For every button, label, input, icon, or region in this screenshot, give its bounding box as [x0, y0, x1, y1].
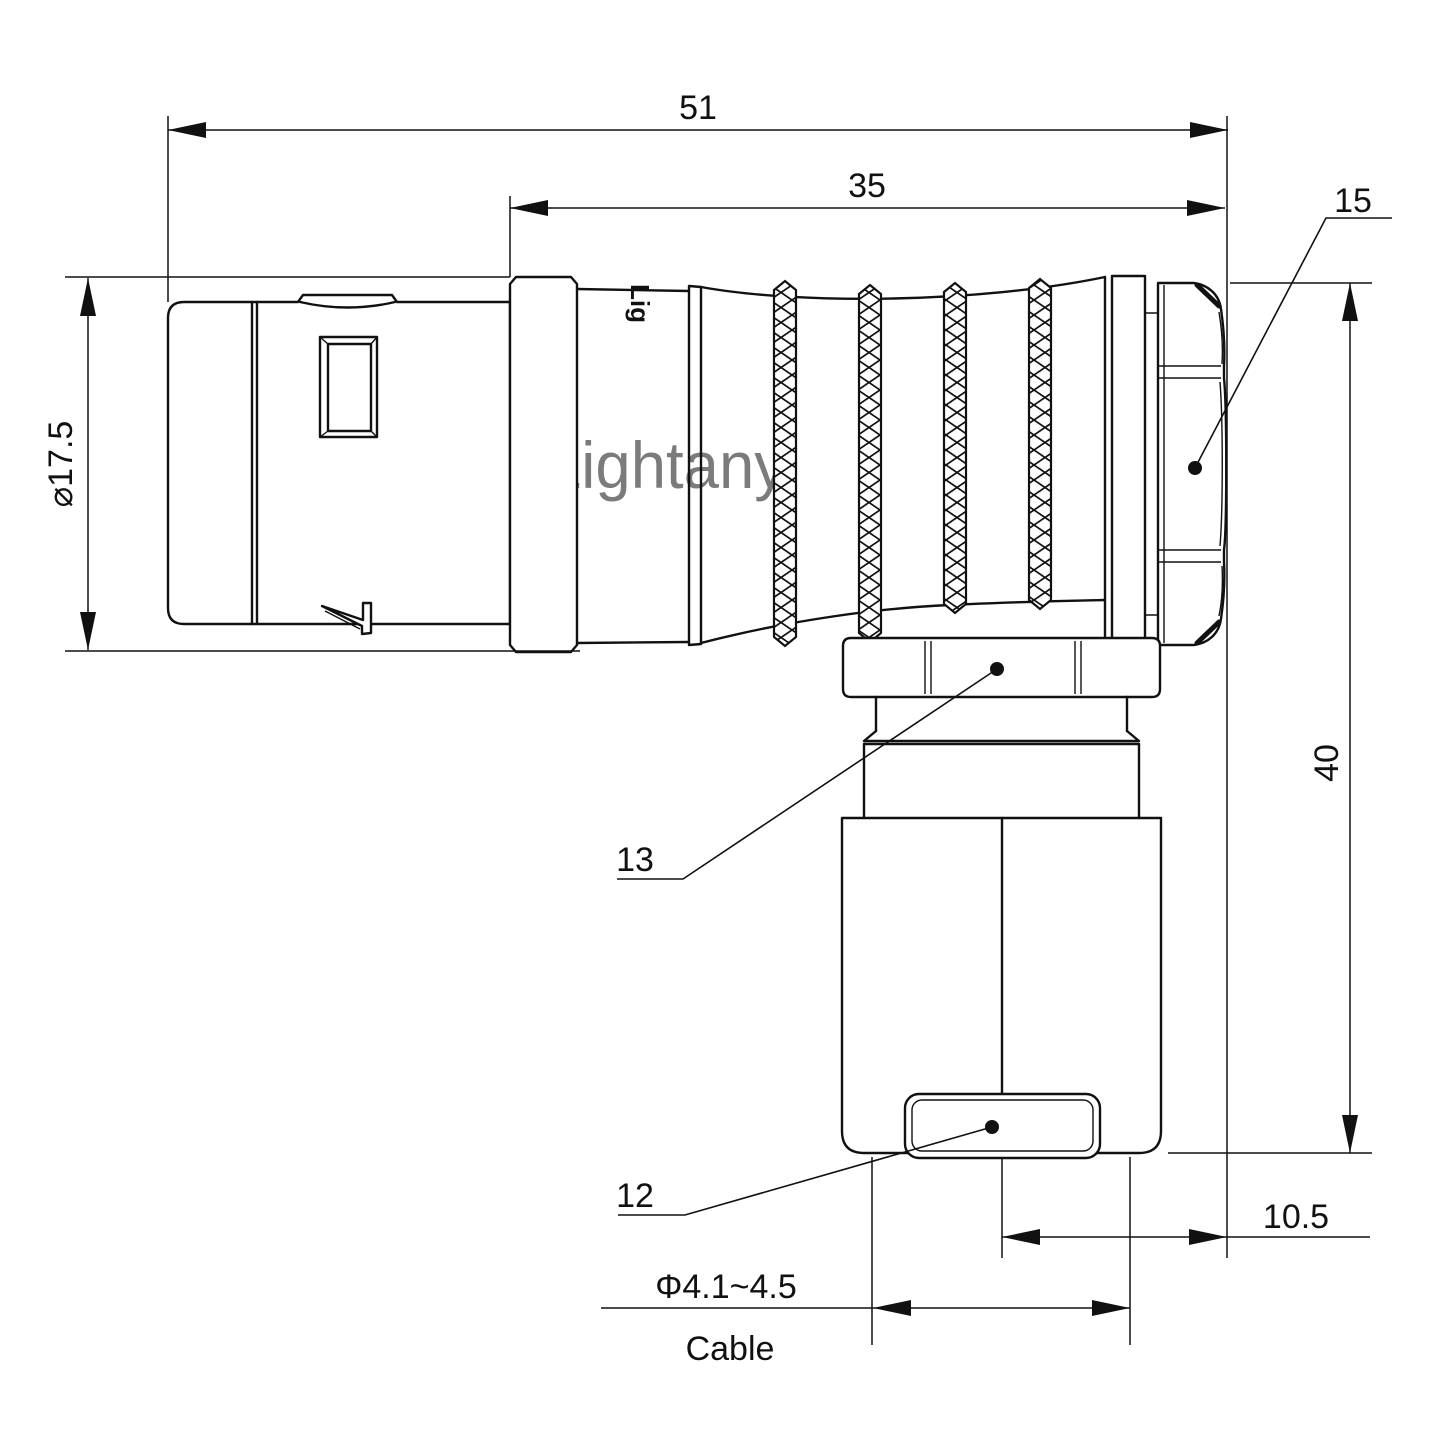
dimension-labels: 51 35 15 ⌀17.5 40 13 12 10.5 Φ4.1~4.5 Ca…	[42, 89, 1372, 1368]
label-40: 40	[1308, 744, 1346, 782]
arrow-17_5-top	[80, 278, 96, 316]
arrow-51-right	[1190, 122, 1228, 138]
arrow-35-right	[1187, 200, 1225, 216]
engraving-text: Lig	[625, 284, 655, 323]
elbow-flare	[864, 731, 1139, 744]
connector-body	[168, 276, 1226, 1158]
cap-ring-connector-lines	[1145, 283, 1158, 645]
cap-ring	[1105, 276, 1145, 638]
arrow-cable-right	[1092, 1300, 1130, 1316]
technical-drawing-page: Lightany	[0, 0, 1440, 1440]
leader-dot-15	[1188, 461, 1202, 475]
elbow-neck	[876, 697, 1127, 731]
leader-dot-13	[990, 662, 1004, 676]
watermark-text: Lightany	[546, 428, 786, 502]
label-35: 35	[848, 167, 886, 205]
label-51: 51	[679, 89, 717, 127]
knurl-band-3	[944, 283, 966, 613]
clamp-window-outer	[905, 1094, 1100, 1158]
mid-band	[510, 277, 577, 652]
knurl-band-2	[859, 285, 881, 642]
label-cable-word: Cable	[686, 1330, 775, 1368]
arrow-40-top	[1342, 283, 1358, 321]
label-10_5: 10.5	[1263, 1198, 1329, 1236]
arrow-35-left	[510, 200, 548, 216]
arrow-cable-left	[873, 1300, 911, 1316]
arrow-10_5-left	[1002, 1229, 1040, 1245]
elbow-upper-body	[864, 744, 1139, 818]
arrow-51-left	[168, 122, 206, 138]
label-13: 13	[616, 841, 654, 879]
arrow-17_5-bottom	[80, 612, 96, 650]
arrow-40-bottom	[1342, 1115, 1358, 1153]
label-12: 12	[616, 1177, 654, 1215]
label-cable-diameter: Φ4.1~4.5	[655, 1268, 797, 1306]
connector-engineering-drawing: Lightany	[0, 0, 1440, 1440]
label-diameter-17_5: ⌀17.5	[42, 421, 80, 508]
label-15: 15	[1334, 182, 1372, 220]
arrow-10_5-right	[1189, 1229, 1227, 1245]
knurl-bands	[774, 279, 1051, 646]
knurl-band-1	[774, 281, 796, 646]
leader-dot-12	[985, 1120, 999, 1134]
knurl-band-4	[1029, 279, 1051, 609]
